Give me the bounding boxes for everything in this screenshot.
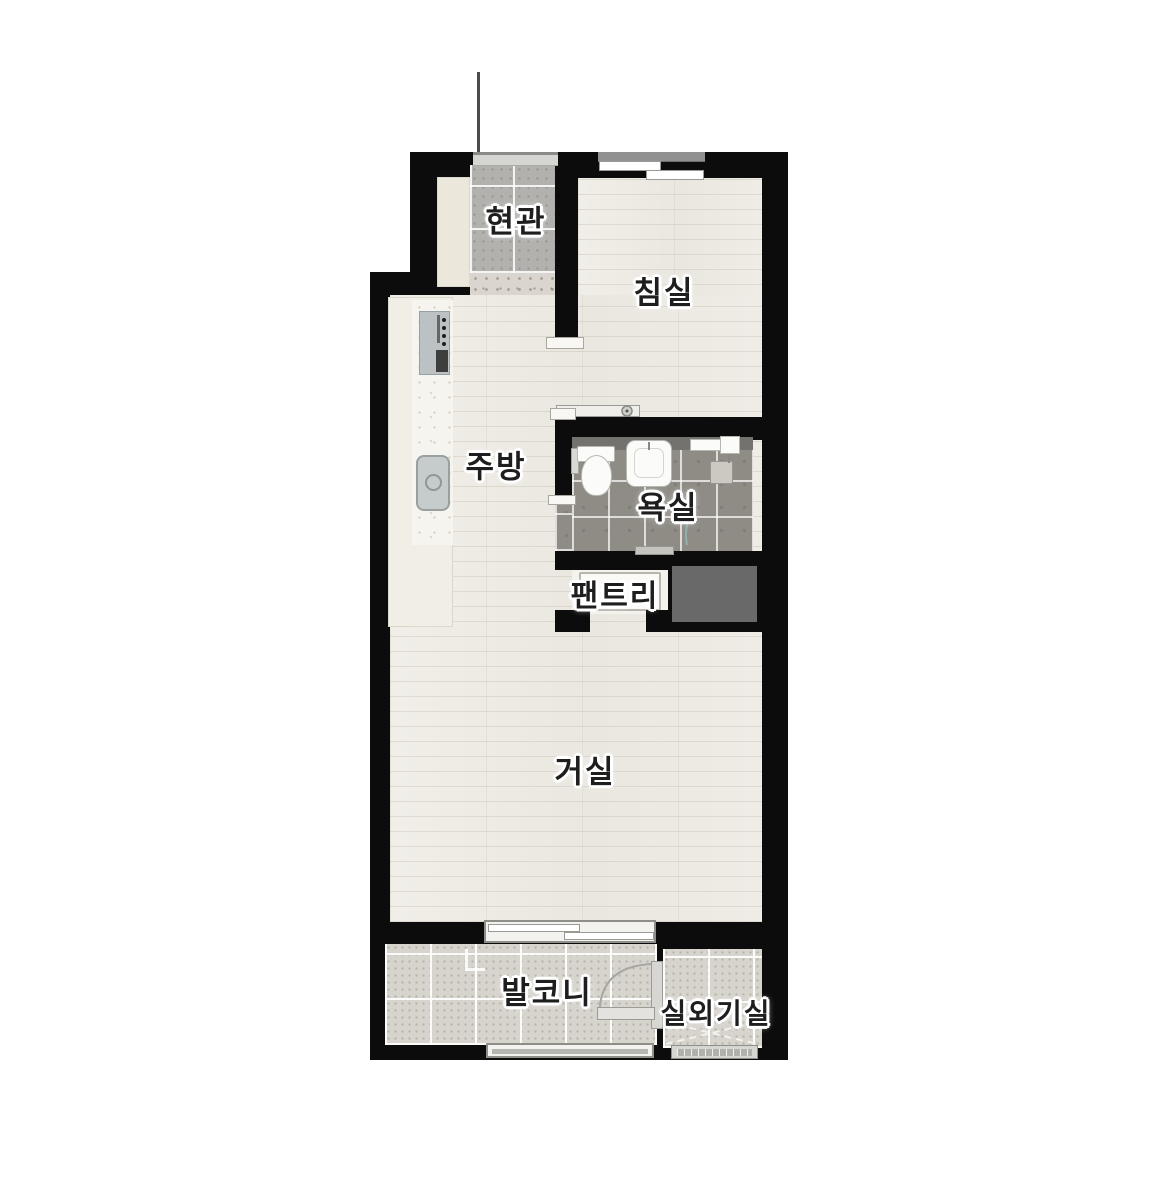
room-label-living: 거실	[554, 757, 615, 788]
washer-tap-box	[710, 461, 733, 484]
shoe-cabinet	[437, 177, 470, 287]
balcony-rail-window	[486, 1043, 654, 1058]
bathroom-shelf	[690, 439, 721, 451]
louver-vent	[671, 1045, 758, 1059]
room-label-bathroom: 욕실	[637, 493, 698, 524]
floor-plan: 현관 침실 주방 욕실 팬트리 거실 발코니 실외기실	[0, 0, 1160, 1200]
sink-drain	[425, 474, 442, 491]
window-sash	[646, 170, 704, 180]
entrance-door	[473, 152, 558, 166]
door-jamb	[550, 408, 576, 420]
kitchen-sink-icon	[416, 455, 450, 511]
balcony-sliding-window	[484, 920, 656, 943]
shower-partition	[635, 546, 674, 555]
entrance-leader-line	[477, 72, 480, 154]
wall-pantry-bottom-right	[646, 610, 668, 632]
sink-basin	[634, 448, 664, 478]
room-label-balcony: 발코니	[501, 978, 593, 1009]
window-rail-bar	[492, 1049, 648, 1054]
door-jamb	[546, 337, 584, 349]
toilet-bowl	[581, 455, 612, 496]
window-sash	[564, 932, 654, 940]
room-label-kitchen: 주방	[465, 452, 526, 483]
room-label-entrance: 현관	[485, 207, 546, 238]
water-heater-icon	[720, 436, 740, 454]
wall-bedroom-left	[555, 152, 578, 346]
louver-slats	[677, 1049, 752, 1056]
window-sash	[488, 924, 580, 932]
bathroom-door-threshold	[555, 501, 572, 551]
bedroom-window	[598, 152, 705, 181]
duct-shaft	[672, 566, 757, 622]
room-label-outdoor-unit: 실외기실	[660, 1000, 771, 1028]
room-label-bedroom: 침실	[633, 278, 694, 309]
exterior-cutout	[370, 152, 410, 272]
wall-pantry-bottom-left	[555, 610, 590, 632]
stove-icon	[419, 311, 450, 375]
wall-bathroom-left	[555, 417, 572, 501]
bathroom-sink-icon	[626, 440, 672, 487]
room-label-pantry: 팬트리	[571, 582, 660, 612]
balcony-step-line-h	[465, 968, 485, 971]
door-jamb	[548, 495, 576, 505]
balcony-door-leaf	[597, 1007, 655, 1020]
sink-tap	[648, 442, 650, 450]
